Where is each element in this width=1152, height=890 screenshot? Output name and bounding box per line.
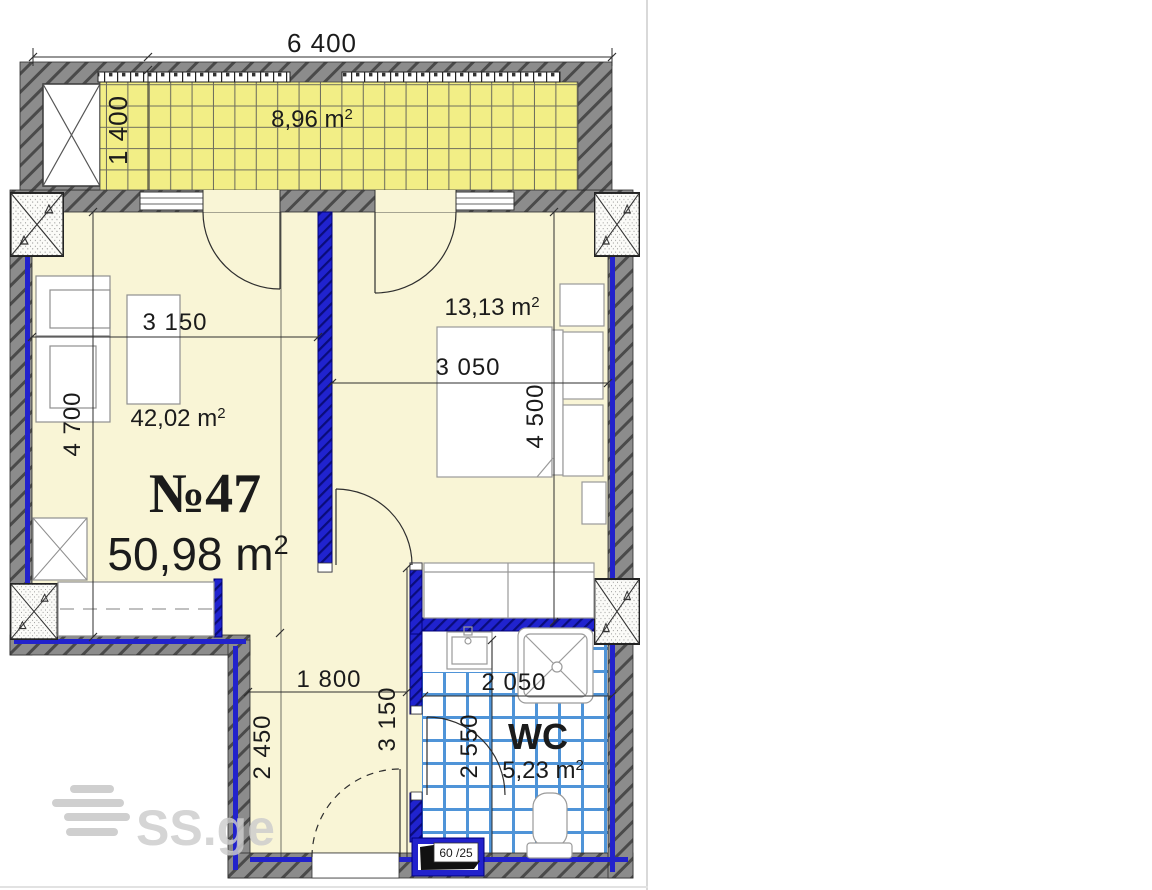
floor-plan-page: 60 /25 6 400 1 400 bbox=[0, 0, 1152, 890]
bedroom-furniture bbox=[424, 284, 606, 618]
wc-name-label: WC bbox=[508, 716, 568, 757]
right-divider-line bbox=[646, 0, 648, 890]
balcony-area-label: 8,96 m2 bbox=[271, 106, 353, 133]
partition-living-bedroom bbox=[318, 212, 332, 572]
counter bbox=[58, 582, 214, 636]
dim-balcony-width: 6 400 bbox=[287, 28, 357, 58]
partition-wc-left-upper bbox=[410, 634, 422, 714]
dim-living-width: 3 150 bbox=[142, 309, 207, 336]
dim-living-depth: 4 700 bbox=[59, 391, 86, 456]
dim-hall-width: 1 800 bbox=[296, 666, 361, 693]
wc-area-label: 5,23 m2 bbox=[502, 757, 584, 784]
living-area-label: 42,02 m2 bbox=[130, 405, 225, 432]
pillow-1 bbox=[563, 332, 603, 399]
dim-wc-width: 2 050 bbox=[481, 669, 546, 696]
column-top-right bbox=[595, 193, 640, 256]
pillow-2 bbox=[563, 405, 603, 476]
column-mid-left bbox=[11, 584, 58, 639]
dim-balcony-depth: 1 400 bbox=[103, 95, 133, 165]
bottom-divider-line bbox=[0, 886, 648, 888]
toilet bbox=[527, 793, 572, 858]
floor-plan-svg: 60 /25 6 400 1 400 bbox=[0, 0, 1152, 890]
dim-wc-depth: 2 550 bbox=[456, 713, 483, 778]
wardrobe bbox=[424, 563, 594, 618]
watermark-text: SS.ge bbox=[136, 800, 275, 856]
bedroom-area-label: 13,13 m2 bbox=[444, 294, 539, 321]
balcony-tile-floor bbox=[100, 82, 578, 190]
partition-bedroom-stub bbox=[410, 563, 422, 634]
vent-label: 60 /25 bbox=[439, 846, 473, 860]
dim-bedroom-width: 3 050 bbox=[435, 354, 500, 381]
unit-number-label: №47 bbox=[149, 463, 261, 525]
nightstand-bottom bbox=[582, 482, 606, 524]
wall-top bbox=[10, 190, 633, 212]
partition-counter-stub bbox=[214, 579, 222, 637]
vent-shaft-box: 60 /25 bbox=[412, 838, 484, 876]
balcony-railing-right bbox=[342, 72, 560, 82]
cabinet-x bbox=[33, 518, 87, 580]
dim-hall-depth: 2 450 bbox=[249, 714, 276, 779]
column-mid-right bbox=[595, 579, 640, 644]
window-bedroom bbox=[456, 192, 514, 210]
sink bbox=[447, 627, 492, 669]
column-top-left bbox=[11, 193, 63, 256]
nightstand-top bbox=[560, 284, 604, 326]
dim-hall-depth-right: 3 150 bbox=[374, 686, 401, 751]
unit-area-label: 50,98 m2 bbox=[107, 528, 288, 580]
window-living bbox=[140, 192, 203, 210]
dim-bedroom-depth: 4 500 bbox=[522, 383, 549, 448]
balcony-railing-left bbox=[98, 72, 290, 82]
